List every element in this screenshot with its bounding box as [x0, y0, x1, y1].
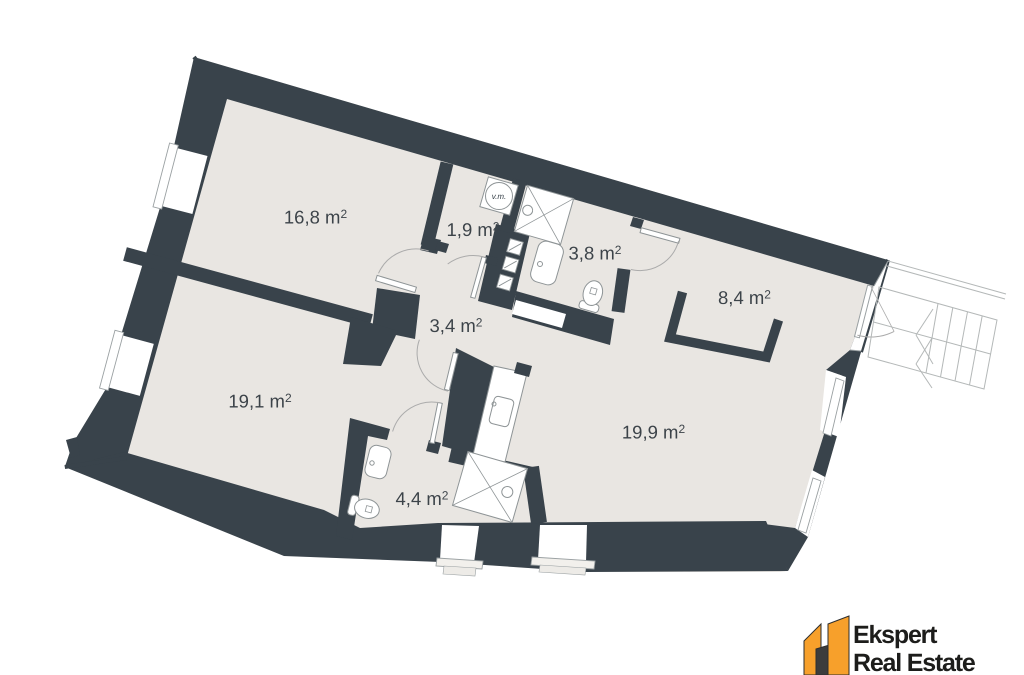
svg-text:v.m.: v.m. — [492, 192, 507, 201]
svg-text:Real Estate: Real Estate — [853, 649, 976, 675]
svg-text:19,1 m2: 19,1 m2 — [228, 391, 292, 412]
svg-text:19,9 m2: 19,9 m2 — [622, 422, 686, 443]
svg-text:3,8 m2: 3,8 m2 — [569, 243, 622, 264]
svg-text:3,4 m2: 3,4 m2 — [430, 315, 483, 336]
svg-text:Ekspert: Ekspert — [853, 621, 938, 649]
svg-text:4,4 m2: 4,4 m2 — [396, 488, 449, 509]
svg-text:16,8 m2: 16,8 m2 — [284, 207, 348, 228]
svg-text:8,4 m2: 8,4 m2 — [718, 287, 771, 308]
svg-text:1,9 m2: 1,9 m2 — [447, 219, 500, 240]
